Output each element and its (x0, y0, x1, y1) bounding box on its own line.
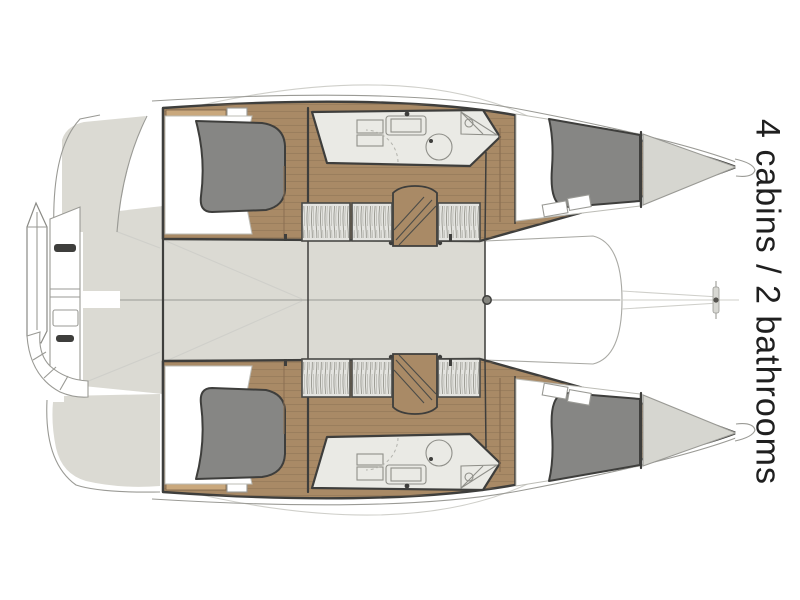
bed-duvet (196, 121, 285, 212)
floorplan-page: 4 cabins / 2 bathrooms (0, 0, 800, 600)
gate-panel (50, 207, 80, 391)
wardrobes (302, 203, 480, 241)
wardrobe-hatch (353, 206, 391, 238)
catamaran-floorplan (0, 0, 800, 600)
hatch-box (53, 310, 78, 326)
anchor-fitting (713, 297, 718, 302)
forward-cabin (500, 114, 736, 224)
caption-cabins-bathrooms: 4 cabins / 2 bathrooms (738, 104, 796, 500)
hull-starboard (152, 354, 746, 515)
bridle-line (622, 303, 719, 309)
wardrobe-hatch (303, 206, 349, 238)
cleat (56, 335, 74, 342)
toilet-flush (429, 139, 433, 143)
faucet (405, 112, 410, 117)
door-post (284, 234, 287, 241)
wardrobe-hatch (439, 206, 479, 238)
bridle-line (622, 291, 719, 297)
hull-port (152, 85, 746, 246)
companionway (389, 186, 442, 246)
transom-platform-starboard (52, 394, 160, 487)
cleat (54, 244, 76, 252)
bed-duvet (549, 119, 640, 207)
bow-locker (643, 134, 736, 205)
door-post (449, 234, 452, 241)
stairs (393, 186, 437, 246)
bathroom-wall (485, 152, 486, 240)
mast-base (483, 296, 491, 304)
